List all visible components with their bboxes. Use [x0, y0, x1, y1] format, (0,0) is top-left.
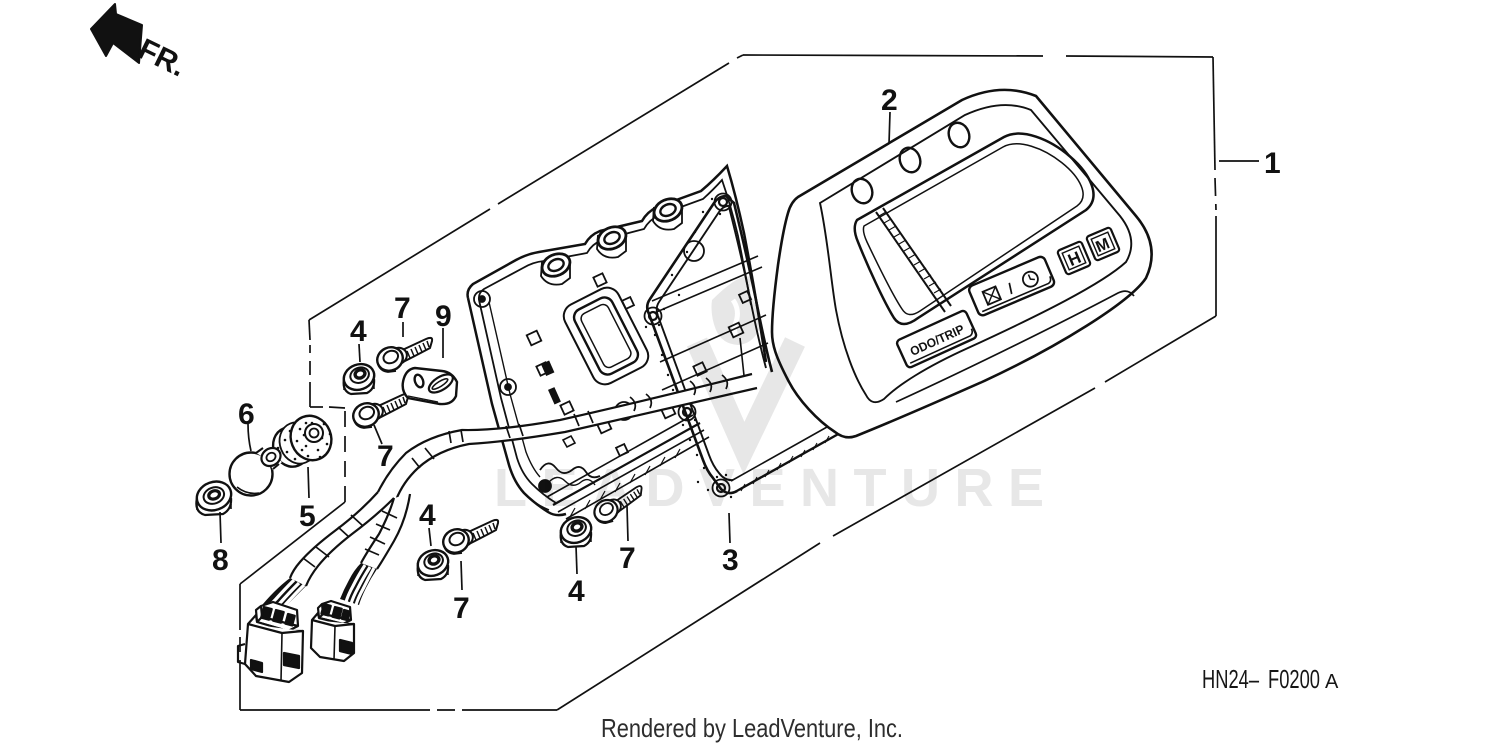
svg-text:LEADVENTURE: LEADVENTURE [494, 458, 1059, 518]
svg-text:1: 1 [1264, 147, 1281, 180]
svg-text:F0200: F0200 [1268, 664, 1320, 694]
svg-text:7: 7 [394, 292, 411, 325]
svg-text:4: 4 [350, 315, 367, 348]
svg-text:6: 6 [238, 398, 255, 431]
svg-text:4: 4 [419, 499, 436, 532]
svg-text:9: 9 [435, 300, 452, 333]
svg-text:3: 3 [722, 544, 739, 577]
svg-text:7: 7 [377, 440, 394, 473]
svg-text:2: 2 [881, 84, 898, 117]
svg-text:4: 4 [568, 575, 585, 608]
svg-text:5: 5 [299, 500, 316, 533]
svg-text:7: 7 [619, 542, 636, 575]
svg-text:HN24–: HN24– [1202, 664, 1259, 694]
svg-text:Rendered by LeadVenture, Inc.: Rendered by LeadVenture, Inc. [601, 713, 903, 743]
svg-text:7: 7 [453, 592, 470, 625]
svg-text:8: 8 [212, 544, 229, 577]
svg-text:A: A [1325, 671, 1339, 693]
